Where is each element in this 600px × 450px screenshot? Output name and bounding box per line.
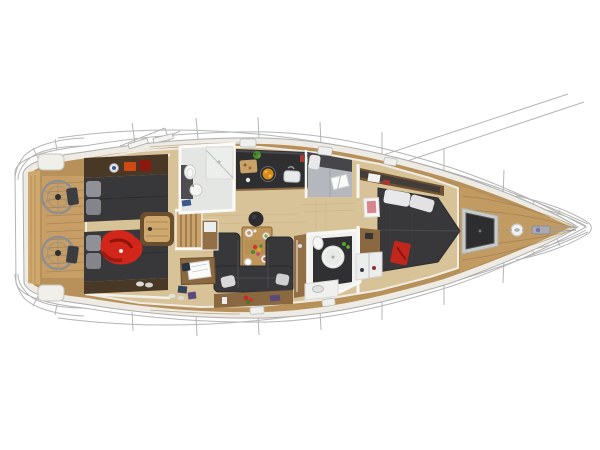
washbasin — [190, 184, 202, 196]
washbasin — [313, 286, 324, 293]
starboard-sideboard — [294, 234, 306, 298]
helm-pedestal-port — [66, 187, 79, 205]
galley-sink — [284, 171, 301, 183]
pillow — [86, 199, 101, 215]
towel — [182, 199, 192, 206]
companionway-steps — [175, 210, 203, 249]
aft-cabin-port — [84, 154, 168, 222]
helm-seat-port — [38, 154, 64, 170]
helm-pedestal-starboard — [66, 245, 79, 263]
galley — [236, 149, 309, 190]
pillow — [86, 235, 101, 251]
dish-center — [112, 166, 116, 170]
shoe — [169, 294, 176, 298]
helm-seat-starboard — [38, 285, 64, 301]
deck-plan-svg — [0, 0, 600, 450]
cockpit-table — [140, 212, 174, 246]
instrument — [181, 262, 190, 271]
vanity — [360, 228, 380, 254]
shoe — [145, 283, 153, 288]
pouf-stool — [249, 212, 264, 227]
pillow — [86, 181, 101, 197]
red-box — [124, 162, 136, 171]
chart-paper — [187, 261, 211, 280]
pillow — [308, 154, 321, 169]
cutting-board — [240, 159, 258, 173]
dark-red-case — [139, 160, 151, 171]
transom-teak — [28, 170, 40, 285]
shoe — [136, 282, 144, 287]
aft-head — [180, 144, 234, 213]
yacht-deck-plan — [0, 0, 600, 450]
pillow — [86, 253, 101, 269]
shoe — [178, 296, 185, 300]
